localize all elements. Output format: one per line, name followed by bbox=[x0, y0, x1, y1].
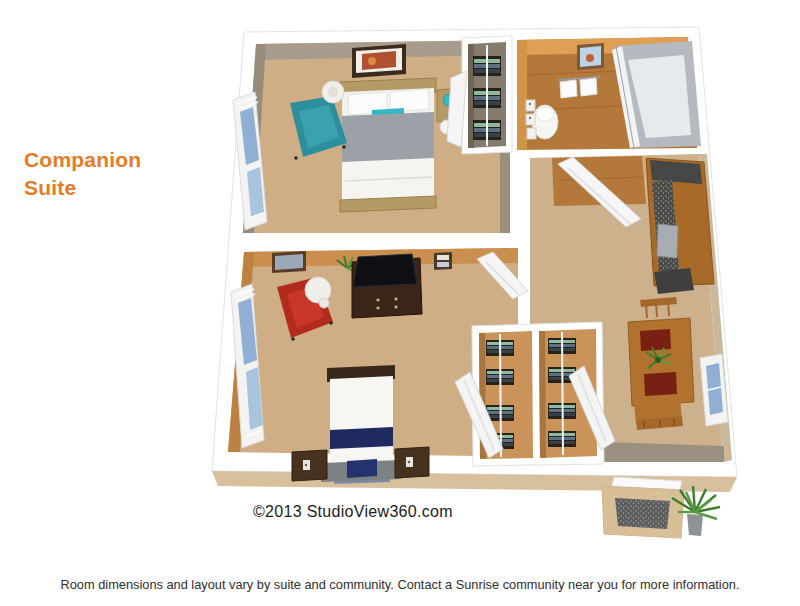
bedroom1-bed bbox=[340, 78, 436, 212]
toiletry-shelf bbox=[526, 100, 536, 139]
bathroom bbox=[517, 37, 701, 150]
placemat bbox=[644, 372, 677, 396]
dining-chair-bottom bbox=[634, 398, 683, 430]
placemat bbox=[640, 329, 671, 351]
bedroom2-wall-frames bbox=[434, 252, 452, 270]
bedroom1-wall-art bbox=[352, 44, 406, 78]
page: Companion Suite bbox=[0, 0, 800, 606]
bedroom2-wall-art bbox=[272, 251, 306, 273]
bedroom1-floor-lamp bbox=[322, 81, 344, 103]
footer-disclaimer: Room dimensions and layout vary by suite… bbox=[0, 577, 800, 592]
bedroom-1 bbox=[233, 36, 512, 233]
watermark: ©2013 StudioView360.com bbox=[253, 503, 453, 521]
suite-title-line1: Companion bbox=[24, 146, 141, 174]
bedroom2-dresser-tv bbox=[352, 254, 422, 318]
floor-plan-rendering bbox=[200, 15, 760, 550]
bedroom2-bed bbox=[321, 365, 401, 482]
suite-title: Companion Suite bbox=[24, 146, 141, 203]
kitchenette-counter bbox=[646, 158, 714, 294]
bathroom-wall-art bbox=[577, 43, 604, 70]
wardrobe-closets bbox=[455, 322, 615, 466]
appliance bbox=[657, 224, 678, 258]
suite-title-line2: Suite bbox=[24, 174, 141, 202]
